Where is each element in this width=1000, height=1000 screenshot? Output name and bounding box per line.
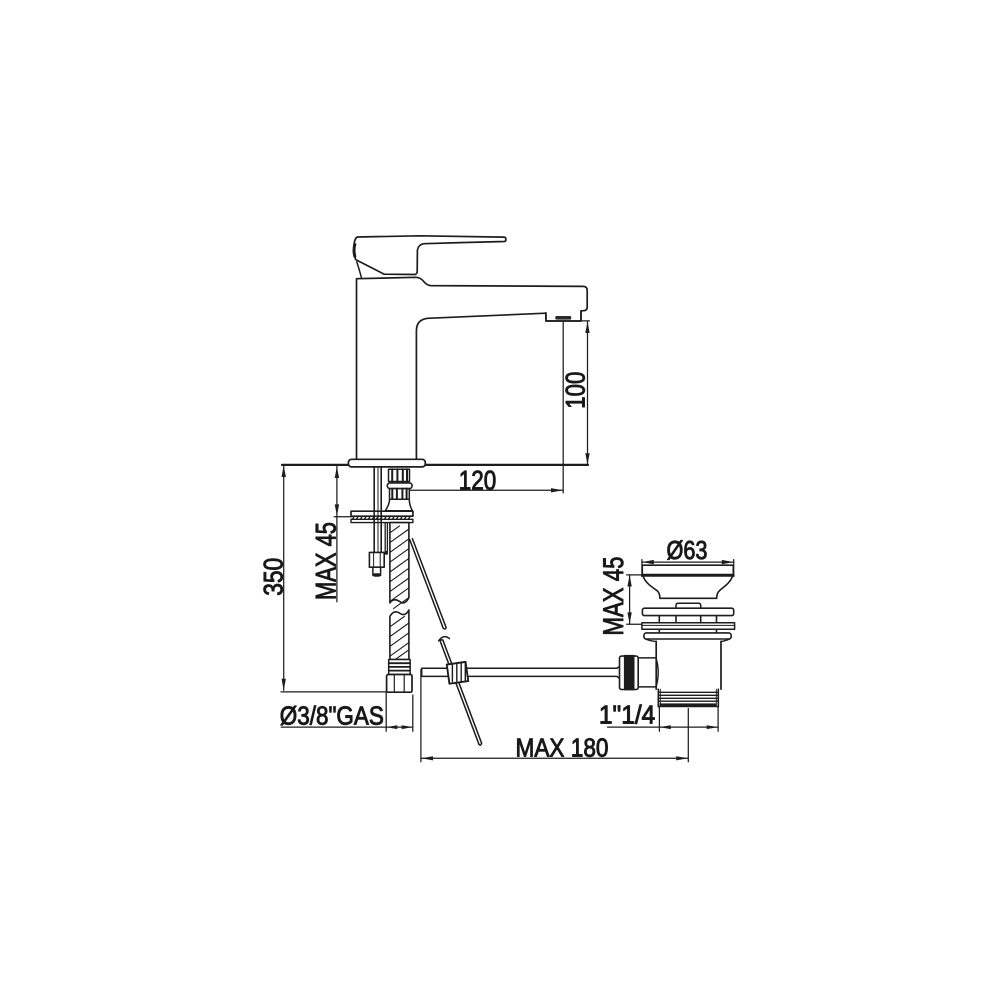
svg-text:120: 120 (459, 465, 497, 495)
svg-text:100: 100 (560, 372, 590, 409)
svg-text:MAX 45: MAX 45 (598, 557, 630, 636)
svg-text:350: 350 (259, 558, 289, 596)
svg-text:Ø63: Ø63 (667, 535, 708, 565)
svg-text:MAX 45: MAX 45 (310, 522, 342, 600)
svg-text:Ø3/8"GAS: Ø3/8"GAS (280, 700, 384, 730)
svg-text:1"1/4: 1"1/4 (599, 700, 656, 730)
svg-text:MAX 180: MAX 180 (516, 733, 609, 763)
